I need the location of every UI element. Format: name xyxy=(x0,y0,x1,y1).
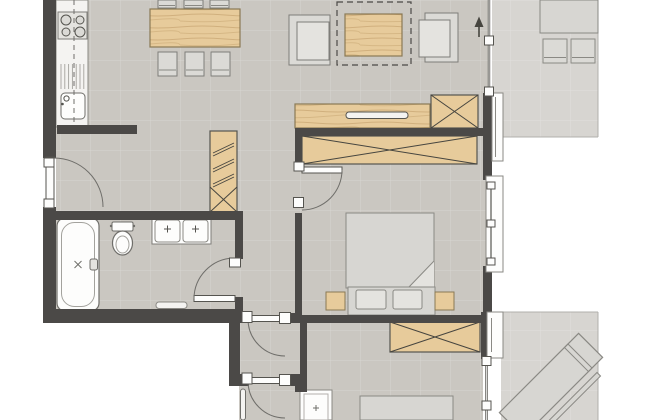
floor-plan-canvas xyxy=(0,0,650,420)
nightstand-left xyxy=(326,292,345,310)
wall xyxy=(235,297,243,310)
wall xyxy=(483,93,492,164)
tv-on-sideboard xyxy=(346,112,408,119)
stove-burner xyxy=(75,27,85,37)
wall xyxy=(57,125,137,134)
towel-rail xyxy=(156,302,187,309)
dining-table-grain xyxy=(150,9,240,47)
terrace-door-frame xyxy=(487,312,503,358)
door-hinge-mark xyxy=(280,375,291,386)
dining-chair xyxy=(210,0,229,8)
pillow xyxy=(356,290,386,309)
wall xyxy=(43,207,56,323)
stove-burner xyxy=(61,15,71,25)
wall xyxy=(43,0,56,158)
dining-chair xyxy=(211,52,230,76)
bedroom2-bed xyxy=(360,396,453,420)
armchair-right-seat xyxy=(419,20,450,57)
glazing-mullion-node xyxy=(485,87,494,96)
door-frame-cap xyxy=(242,373,252,384)
wall xyxy=(43,309,243,323)
door-frame-cap xyxy=(44,199,54,208)
toilet-bowl xyxy=(113,231,133,255)
window-frame xyxy=(492,93,503,161)
stove-burner xyxy=(76,16,84,24)
coffee-table-grain xyxy=(345,14,402,56)
door-hinge-mark xyxy=(280,313,291,324)
window-mullion-node xyxy=(487,258,495,265)
radiator xyxy=(241,389,246,420)
door-handle-mark xyxy=(294,198,304,208)
door-frame-cap xyxy=(242,312,252,323)
glazing-mullion-node xyxy=(485,36,494,45)
nightstand-right xyxy=(435,292,454,310)
toilet-button xyxy=(133,225,135,227)
door-frame-cap xyxy=(294,162,304,171)
dining-chair xyxy=(158,52,177,76)
toilet-button xyxy=(110,225,112,227)
floor-plan xyxy=(0,0,650,420)
glazing-mullion-node xyxy=(482,357,491,366)
dining-chair xyxy=(185,52,204,76)
wall xyxy=(295,374,307,392)
armchair-left-seat xyxy=(297,22,329,60)
toilet-tank xyxy=(112,222,133,231)
bathtub-faucet xyxy=(90,259,98,270)
bedroom-door-leaf xyxy=(302,167,342,173)
dining-chair xyxy=(158,0,176,8)
wall xyxy=(56,211,243,220)
dining-chair xyxy=(184,0,203,8)
door-frame-cap xyxy=(44,158,54,167)
glazing-mullion-node xyxy=(482,401,491,410)
wall xyxy=(295,213,302,322)
stove-burner xyxy=(62,28,70,36)
neighbor-chair xyxy=(571,39,595,63)
sink-knob xyxy=(61,103,64,106)
wall xyxy=(295,128,492,136)
bathroom-door-leaf xyxy=(194,296,235,302)
window-mullion-node xyxy=(487,220,495,227)
wall xyxy=(300,322,307,378)
neighbor-table xyxy=(540,0,598,33)
window-mullion-node xyxy=(487,182,495,189)
wall xyxy=(235,220,243,259)
door-frame-cap xyxy=(230,258,241,267)
neighbor-chair xyxy=(543,39,567,63)
wall xyxy=(295,315,491,323)
wall xyxy=(229,322,240,376)
pillow xyxy=(393,290,422,309)
